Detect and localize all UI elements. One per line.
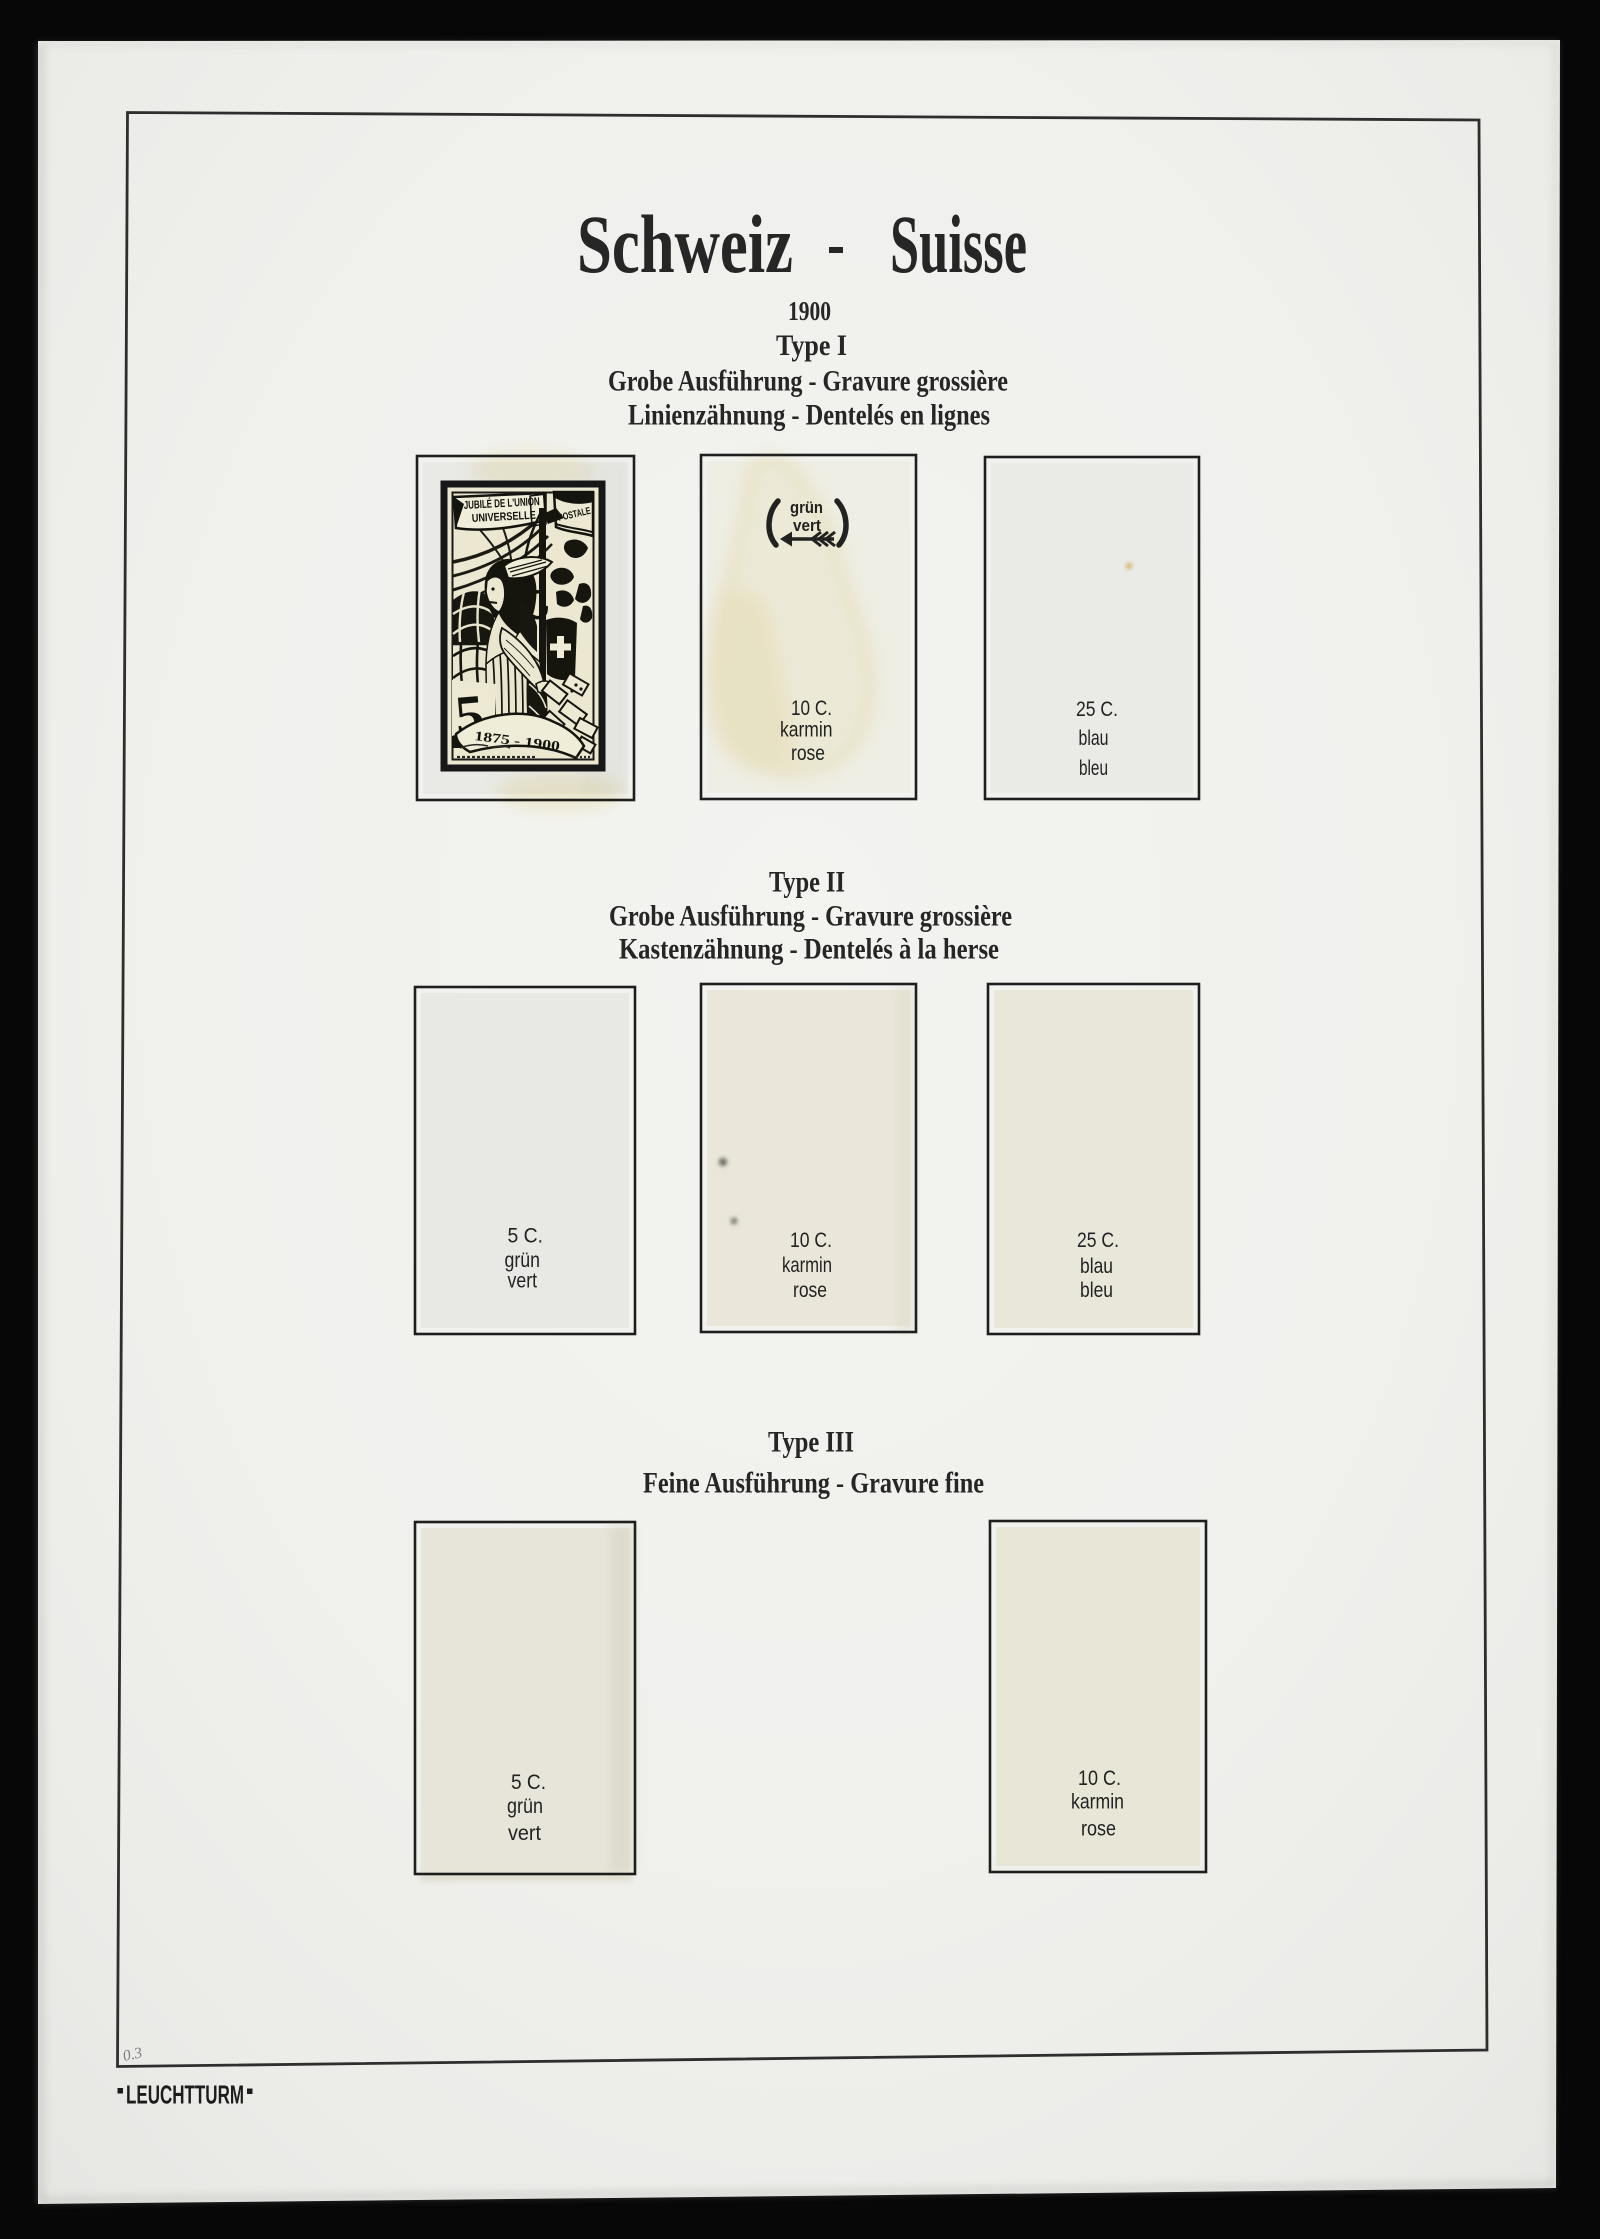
svg-text:5 C.: 5 C.: [508, 1224, 544, 1248]
svg-text:karmin: karmin: [1071, 1790, 1124, 1814]
svg-text:Suisse: Suisse: [890, 198, 1027, 290]
svg-text:blau: blau: [1079, 726, 1109, 750]
svg-text:blau: blau: [1080, 1254, 1113, 1278]
svg-text:vert: vert: [508, 1821, 541, 1845]
svg-text:Grobe Ausführung - Gravure g: Grobe Ausführung - Gravure grossière: [608, 366, 1008, 398]
svg-text:rose: rose: [793, 1278, 827, 1302]
svg-text:Type III: Type III: [768, 1427, 854, 1459]
svg-text:Kastenzähnung - Dentelés à l: Kastenzähnung - Dentelés à la herse: [619, 934, 999, 966]
svg-text:bleu: bleu: [1080, 1278, 1113, 1302]
svg-text:5 C.: 5 C.: [511, 1770, 546, 1794]
svg-text:10 C.: 10 C.: [790, 1228, 832, 1252]
svg-text:Linienzähnung - Dentelés en: Linienzähnung - Dentelés en lignes: [628, 400, 990, 432]
svg-text:1900: 1900: [788, 295, 831, 326]
svg-text:bleu: bleu: [1079, 756, 1108, 780]
svg-text:Schweiz: Schweiz: [577, 198, 793, 290]
svg-text:Feine Ausführung - Gravure f: Feine Ausführung - Gravure fine: [643, 1468, 984, 1500]
svg-text:rose: rose: [1081, 1817, 1116, 1841]
svg-text:25 C.: 25 C.: [1076, 697, 1118, 721]
svg-text:vert: vert: [508, 1269, 538, 1293]
svg-text:Grobe Ausführung - Gravure g: Grobe Ausführung - Gravure grossière: [609, 901, 1012, 933]
svg-text:grün: grün: [507, 1794, 543, 1818]
svg-text:10 C.: 10 C.: [1078, 1766, 1121, 1790]
svg-text:LEUCHTTURM: LEUCHTTURM: [126, 2080, 244, 2110]
svg-text:Type I: Type I: [776, 330, 847, 362]
svg-text:25 C.: 25 C.: [1077, 1228, 1119, 1252]
svg-text:karmin: karmin: [782, 1253, 832, 1277]
svg-text:Type II: Type II: [769, 867, 845, 899]
